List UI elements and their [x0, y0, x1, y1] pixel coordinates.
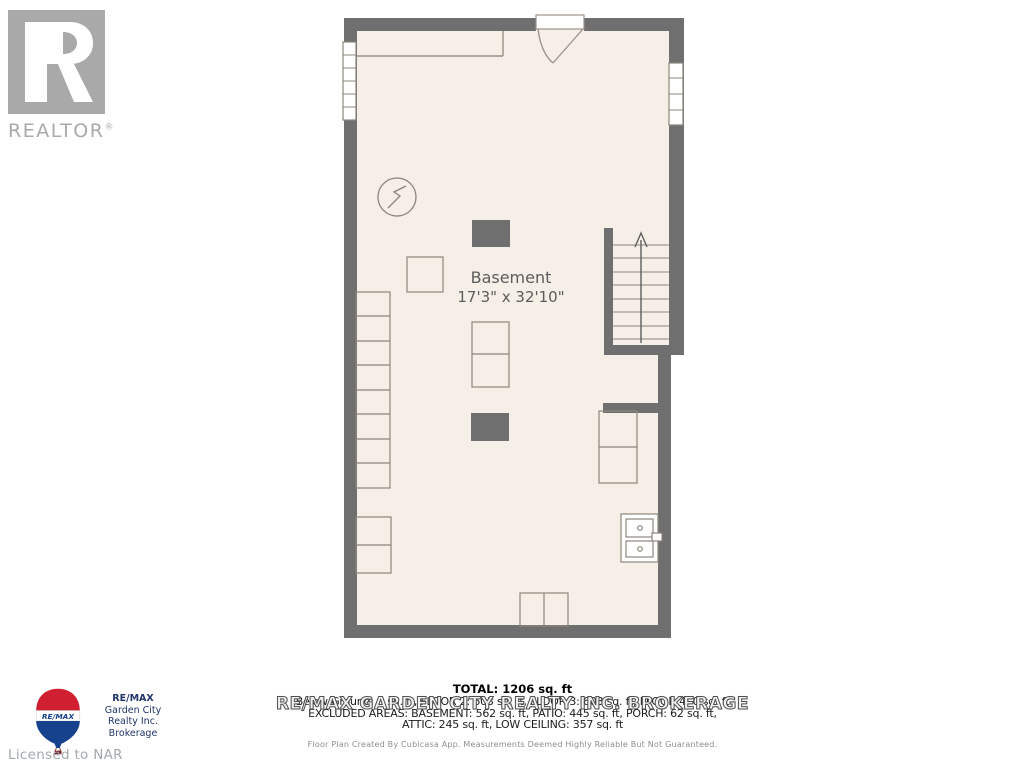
realtor-r-icon [8, 10, 105, 114]
realtor-logo: REALTOR® [8, 10, 138, 142]
window-icon-right [669, 63, 683, 125]
floorplan-basement: Basement 17'3" x 32'10" [335, 5, 695, 650]
licensed-to-nar: Licensed to NAR [8, 747, 123, 763]
laundry-sink-icon [621, 514, 662, 562]
registered-mark: ® [104, 123, 113, 133]
window-icon-left [343, 42, 356, 120]
room-label: Basement [471, 268, 552, 287]
realtor-wordmark-text: REALTOR [8, 120, 104, 142]
area-summary: TOTAL: 1206 sq. ft Below Ground: 0 sq. f… [240, 683, 785, 749]
summary-excluded-2: ATTIC: 245 sq. ft, LOW CEILING: 357 sq. … [240, 719, 785, 731]
support-post [472, 220, 510, 247]
realtor-wordmark: REALTOR® [8, 120, 138, 142]
remax-name-line: Realty Inc. [94, 716, 172, 728]
support-post [471, 413, 509, 441]
summary-floors: Below Ground: 0 sq. ft, FLOOR 2: 603 sq.… [240, 696, 785, 708]
remax-name-line: Brokerage [94, 728, 172, 740]
room-dimensions: 17'3" x 32'10" [457, 288, 564, 306]
disclaimer: Floor Plan Created By Cubicasa App. Meas… [240, 740, 785, 749]
remax-brokerage-name: RE/MAX Garden City Realty Inc. Brokerage [94, 693, 172, 739]
remax-name-line: RE/MAX [94, 693, 172, 705]
remax-balloon-text: RE/MAX [42, 712, 76, 721]
remax-name-line: Garden City [94, 705, 172, 717]
remax-balloon-icon: RE/MAX [30, 687, 86, 755]
